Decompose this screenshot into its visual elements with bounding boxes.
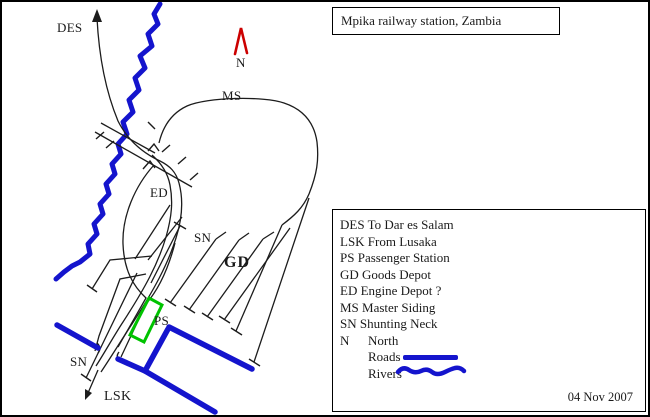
legend-north-label: North: [368, 333, 398, 348]
label-ms: MS: [222, 88, 241, 104]
date-label: 04 Nov 2007: [568, 390, 633, 405]
label-sn-top: SN: [194, 230, 211, 246]
shunting-neck-lines: [81, 222, 186, 381]
legend-item: DES To Dar es Salam: [340, 217, 454, 234]
north-arrow-icon: [235, 28, 247, 54]
legend-item: ED Engine Depot ?: [340, 283, 454, 300]
legend-item-north: NNorth: [340, 333, 454, 350]
label-north: N: [236, 55, 246, 71]
label-ed: ED: [150, 185, 168, 201]
legend-item: LSK From Lusaka: [340, 234, 454, 251]
roads-swatch-icon: [403, 355, 458, 360]
legend-item: SN Shunting Neck: [340, 316, 454, 333]
label-gd: GD: [224, 254, 250, 272]
sketch-map-page: DES N MS ED SN GD PS SN LSK Mpika railwa…: [0, 0, 650, 417]
goods-depot-sidings: [165, 198, 309, 366]
label-des: DES: [57, 20, 82, 36]
label-ps: PS: [154, 313, 169, 329]
master-siding-loop: [159, 98, 318, 225]
legend-roads-label: Roads: [368, 349, 401, 364]
label-lsk: LSK: [104, 389, 131, 405]
river-line: [56, 4, 160, 279]
page-title: Mpika railway station, Zambia: [341, 13, 501, 28]
rivers-swatch-icon: [393, 363, 469, 379]
legend-box: DES To Dar es Salam LSK From Lusaka PS P…: [332, 209, 646, 412]
legend-item: PS Passenger Station: [340, 250, 454, 267]
title-box: Mpika railway station, Zambia: [332, 7, 560, 35]
label-sn-bottom: SN: [70, 354, 87, 370]
legend-north-abbr: N: [340, 333, 368, 350]
legend-item: GD Goods Depot: [340, 267, 454, 284]
legend-item: MS Master Siding: [340, 300, 454, 317]
